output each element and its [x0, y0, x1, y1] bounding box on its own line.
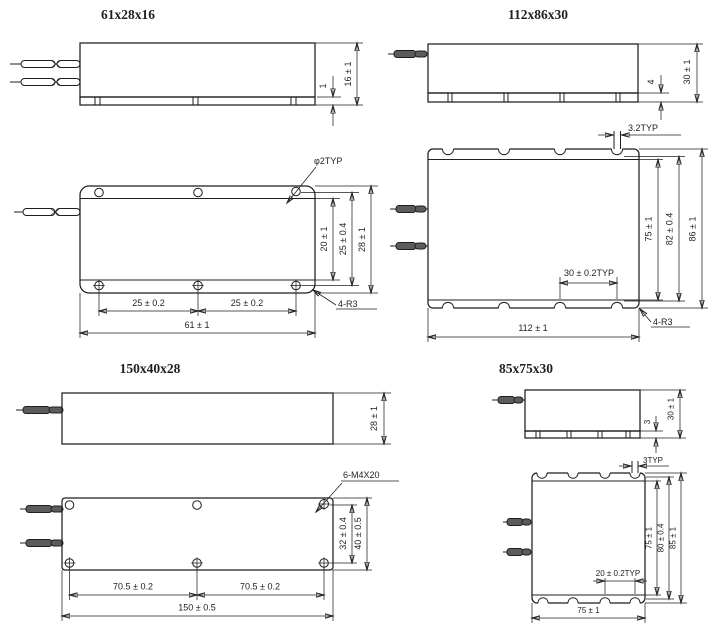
drawing-61x28x16: 61x28x16 — [10, 7, 378, 338]
fiber-pigtail — [14, 209, 80, 216]
slot-width-callout: 3.2TYP — [628, 123, 658, 133]
dimensions: 28 ± 1 — [333, 393, 391, 444]
depth-label: 85 ± 1 — [669, 526, 678, 549]
drawing-sheet: 61x28x16 — [0, 0, 723, 643]
fiber-pigtails — [503, 519, 532, 556]
height-label: 30 ± 1 — [682, 60, 692, 85]
slot-row-spacing-label: 80 ± 0.4 — [657, 523, 666, 552]
hole-pitch-left-label: 25 ± 0.2 — [132, 298, 164, 308]
width-label: 75 ± 1 — [577, 606, 600, 615]
depth-label: 86 ± 1 — [688, 217, 698, 242]
enclosure-body — [428, 44, 638, 102]
drawing-title: 85x75x30 — [499, 361, 553, 376]
slot-pitch-label: 20 ± 0.2TYP — [596, 569, 640, 578]
height-label: 28 ± 1 — [369, 406, 379, 431]
hole-pitch-right-label: 25 ± 0.2 — [231, 298, 263, 308]
width-label: 150 ± 0.5 — [178, 603, 215, 613]
enclosure-body — [80, 186, 315, 293]
fiber-pigtail — [16, 407, 63, 414]
top-view: 3TYP 75 ± 1 80 ± 0.4 85 ± 1 20 ± 0.2TY — [503, 456, 687, 623]
top-view: 3.2TYP 75 ± 1 82 ± 0.4 86 ± 1 30 ± 0.2TY… — [390, 123, 708, 342]
top-view: φ2TYP 20 ± 1 25 ± 0.4 28 ± 1 4-R3 — [14, 156, 378, 338]
mounting-holes — [64, 498, 330, 569]
enclosure-body — [532, 471, 645, 604]
width-label: 112 ± 1 — [518, 323, 547, 333]
fiber-pigtail — [492, 397, 525, 404]
slot-width-callout: 3TYP — [643, 456, 663, 465]
fiber-pigtails — [10, 61, 80, 86]
dimensions: φ2TYP 20 ± 1 25 ± 0.4 28 ± 1 4-R3 — [80, 156, 378, 338]
drawing-150x40x28: 150x40x28 28 ± 1 — [16, 361, 399, 621]
hole-pitch-right-label: 70.5 ± 0.2 — [240, 582, 280, 592]
fiber-pigtails — [20, 506, 63, 547]
dimensions: 4 30 ± 1 — [638, 44, 703, 120]
base-height-label: 4 — [646, 79, 656, 84]
slot-pitch-label: 30 ± 0.2TYP — [564, 268, 614, 278]
corner-radius-callout: 4-R3 — [653, 317, 673, 327]
drawing-title: 61x28x16 — [101, 7, 155, 22]
drawing-title: 112x86x30 — [508, 7, 568, 22]
side-view: 28 ± 1 — [16, 393, 391, 444]
dimensions: 6-M4X20 32 ± 0.4 40 ± 0.5 70.5 ± 0.2 70.… — [62, 470, 399, 621]
drawing-title: 150x40x28 — [120, 361, 181, 376]
hole-row-spacing-label: 25 ± 0.4 — [338, 223, 348, 255]
flange-spacing-label: 75 ± 1 — [645, 526, 654, 549]
top-view: 6-M4X20 32 ± 0.4 40 ± 0.5 70.5 ± 0.2 70.… — [20, 470, 399, 621]
hole-pitch-left-label: 70.5 ± 0.2 — [113, 582, 153, 592]
hole-diameter-callout: φ2TYP — [314, 156, 342, 166]
fiber-pigtails — [390, 206, 428, 250]
width-label: 61 ± 1 — [185, 320, 210, 330]
mounting-holes — [93, 187, 302, 291]
dimensions: 1 16 ± 1 — [315, 43, 363, 126]
depth-label: 40 ± 0.5 — [353, 517, 363, 549]
enclosure-body — [62, 393, 333, 444]
side-view: 1 16 ± 1 — [10, 43, 363, 126]
fiber-pigtail — [388, 51, 428, 58]
slot-row-spacing-label: 82 ± 0.4 — [665, 213, 675, 245]
enclosure-body — [525, 390, 640, 438]
screw-callout: 6-M4X20 — [343, 470, 380, 480]
base-height-label: 3 — [643, 419, 652, 424]
side-view: 3 30 ± 1 — [492, 390, 686, 453]
enclosure-body — [80, 43, 315, 105]
height-label: 16 ± 1 — [343, 62, 353, 87]
flange-spacing-label: 75 ± 1 — [644, 217, 654, 242]
base-height-label: 1 — [318, 83, 328, 88]
drawing-112x86x30: 112x86x30 4 — [388, 7, 708, 342]
drawing-85x75x30: 85x75x30 3 — [492, 361, 687, 623]
depth-label: 28 ± 1 — [357, 227, 367, 252]
drawing-canvas: 61x28x16 — [0, 0, 723, 643]
dimensions: 3 30 ± 1 — [640, 390, 686, 453]
corner-radius-callout: 4-R3 — [338, 299, 358, 309]
height-label: 30 ± 1 — [667, 397, 676, 420]
dimensions: 3.2TYP 75 ± 1 82 ± 0.4 86 ± 1 30 ± 0.2TY… — [428, 123, 708, 342]
hole-row-spacing-label: 32 ± 0.4 — [338, 517, 348, 549]
enclosure-body — [428, 147, 639, 309]
side-view: 4 30 ± 1 — [388, 44, 703, 120]
flange-spacing-label: 20 ± 1 — [319, 227, 329, 252]
